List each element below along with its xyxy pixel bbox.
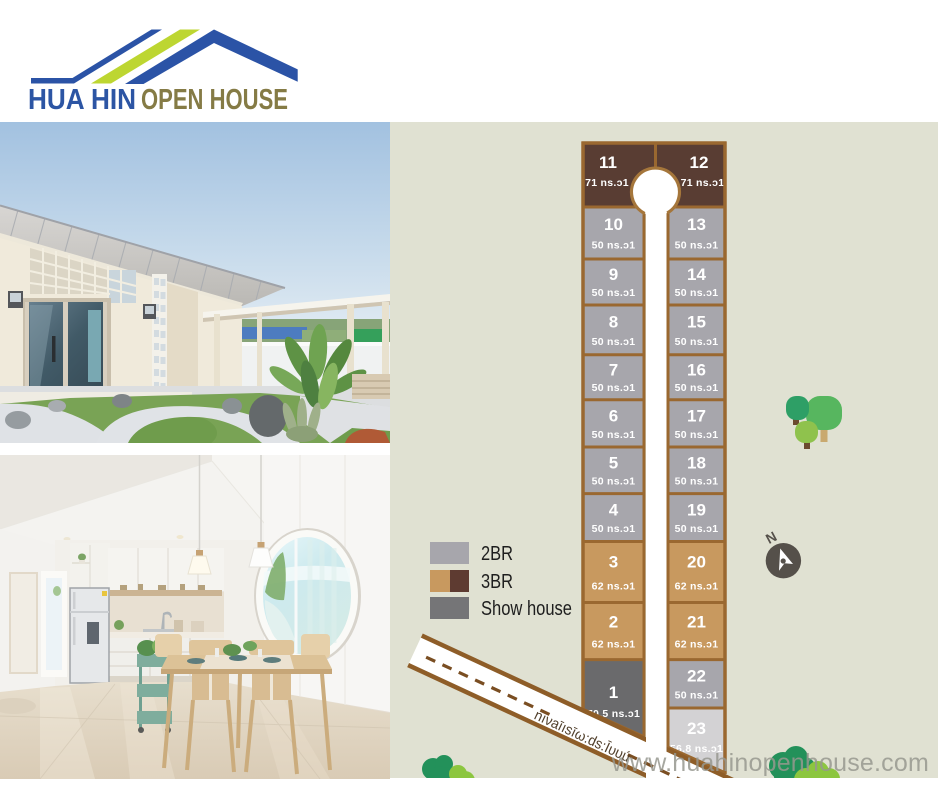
svg-text:22: 22 xyxy=(687,667,706,686)
svg-text:www.huahinopenhouse.com: www.huahinopenhouse.com xyxy=(611,749,929,777)
svg-text:2: 2 xyxy=(609,612,618,631)
svg-text:50 ns.ɔ1: 50 ns.ɔ1 xyxy=(675,689,719,701)
svg-text:50 ns.ɔ1: 50 ns.ɔ1 xyxy=(592,429,636,441)
svg-text:50 ns.ɔ1: 50 ns.ɔ1 xyxy=(592,476,636,488)
svg-text:50 ns.ɔ1: 50 ns.ɔ1 xyxy=(675,476,719,488)
svg-text:4: 4 xyxy=(609,500,619,519)
svg-text:11: 11 xyxy=(599,153,617,172)
svg-text:62 ns.ɔ1: 62 ns.ɔ1 xyxy=(592,580,636,592)
svg-text:Show house: Show house xyxy=(481,598,572,620)
svg-text:50 ns.ɔ1: 50 ns.ɔ1 xyxy=(592,382,636,394)
svg-text:20: 20 xyxy=(687,553,706,572)
svg-text:50 ns.ɔ1: 50 ns.ɔ1 xyxy=(675,336,719,348)
svg-text:50 ns.ɔ1: 50 ns.ɔ1 xyxy=(592,287,636,299)
svg-text:1: 1 xyxy=(609,683,618,702)
svg-text:5: 5 xyxy=(609,453,618,472)
svg-text:71 ns.ɔ1: 71 ns.ɔ1 xyxy=(585,177,629,189)
svg-text:17: 17 xyxy=(687,406,706,425)
svg-text:9: 9 xyxy=(609,265,618,284)
svg-text:13: 13 xyxy=(687,215,706,234)
svg-text:50 ns.ɔ1: 50 ns.ɔ1 xyxy=(675,239,719,251)
svg-text:62 ns.ɔ1: 62 ns.ɔ1 xyxy=(675,639,719,651)
svg-text:16: 16 xyxy=(687,361,706,380)
svg-text:50 ns.ɔ1: 50 ns.ɔ1 xyxy=(675,382,719,394)
svg-text:50 ns.ɔ1: 50 ns.ɔ1 xyxy=(675,523,719,535)
svg-text:HUA HIN: HUA HIN xyxy=(28,84,136,116)
svg-text:71 ns.ɔ1: 71 ns.ɔ1 xyxy=(681,177,725,189)
svg-text:12: 12 xyxy=(690,153,709,172)
svg-text:10: 10 xyxy=(604,215,623,234)
svg-text:2BR: 2BR xyxy=(481,543,513,565)
svg-text:21: 21 xyxy=(687,612,706,631)
svg-text:7: 7 xyxy=(609,361,618,380)
svg-text:50 ns.ɔ1: 50 ns.ɔ1 xyxy=(592,523,636,535)
svg-text:50 ns.ɔ1: 50 ns.ɔ1 xyxy=(675,429,719,441)
svg-text:6: 6 xyxy=(609,406,618,425)
svg-text:62 ns.ɔ1: 62 ns.ɔ1 xyxy=(592,639,636,651)
svg-text:14: 14 xyxy=(687,265,706,284)
svg-text:OPEN HOUSE: OPEN HOUSE xyxy=(141,84,288,116)
svg-text:62 ns.ɔ1: 62 ns.ɔ1 xyxy=(675,580,719,592)
svg-text:23: 23 xyxy=(687,719,706,738)
svg-text:3BR: 3BR xyxy=(481,571,513,593)
svg-text:19: 19 xyxy=(687,500,706,519)
svg-text:50 ns.ɔ1: 50 ns.ɔ1 xyxy=(675,287,719,299)
svg-text:18: 18 xyxy=(687,453,706,472)
svg-text:3: 3 xyxy=(609,553,618,572)
svg-text:15: 15 xyxy=(687,312,706,331)
svg-text:50 ns.ɔ1: 50 ns.ɔ1 xyxy=(592,239,636,251)
svg-text:8: 8 xyxy=(609,312,618,331)
svg-text:50 ns.ɔ1: 50 ns.ɔ1 xyxy=(592,336,636,348)
